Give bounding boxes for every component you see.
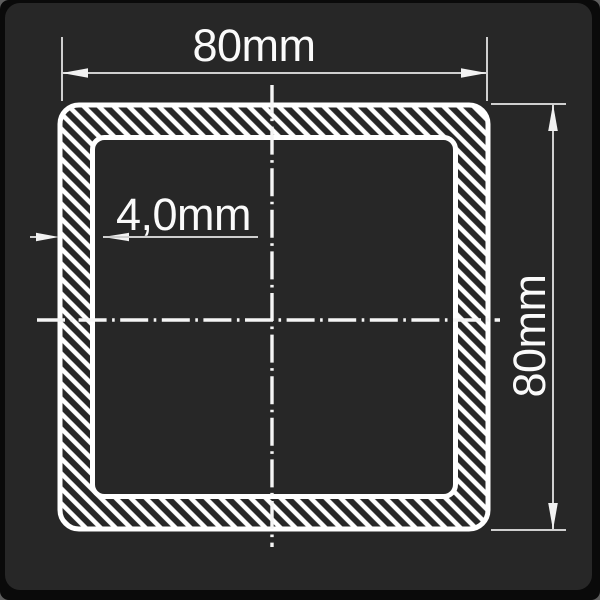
height-dimension: 80mm xyxy=(491,104,566,530)
wall-dim-label: 4,0mm xyxy=(116,189,251,240)
cross-section-diagram: 80mm 80mm 4,0mm xyxy=(0,0,600,600)
page-background: 80mm 80mm 4,0mm xyxy=(0,0,600,600)
width-dim-arrow-right xyxy=(461,68,487,78)
width-dim-label: 80mm xyxy=(192,20,315,71)
width-dim-arrow-left xyxy=(62,68,88,78)
width-dimension: 80mm xyxy=(62,20,487,101)
height-dim-arrow-top xyxy=(548,104,558,131)
wall-dim-arrow-outer xyxy=(36,233,59,241)
height-dim-label: 80mm xyxy=(504,274,555,397)
height-dim-arrow-bottom xyxy=(548,503,558,530)
